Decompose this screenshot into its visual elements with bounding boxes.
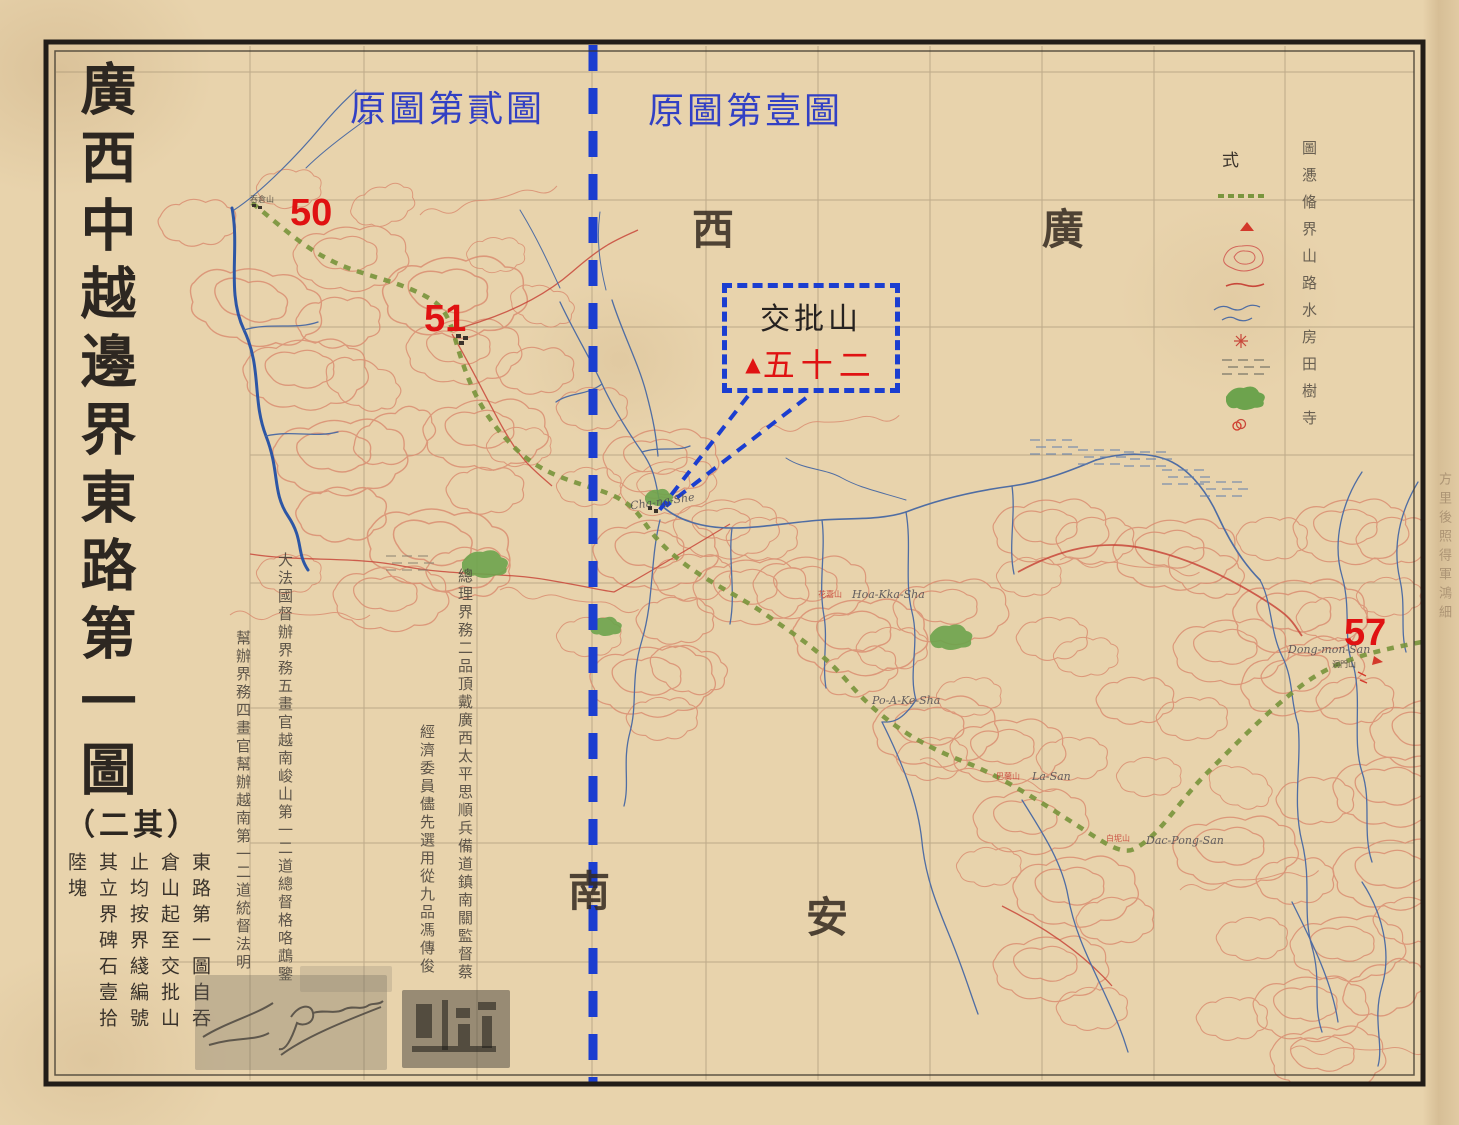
sheet1-label: 原圖第壹圖 (648, 82, 843, 134)
legend-contour-symbol (1224, 246, 1263, 271)
place-label: Po-A-Ke-Sha (872, 694, 940, 707)
caption-committee-member: 經濟委員儘先選用從九品馮傳俊 (412, 724, 434, 976)
map-title-part: （二其） (58, 800, 208, 844)
marsh-texture (386, 440, 1248, 570)
region-char-xi: 西 (692, 196, 734, 257)
place-label: Hoa-Kka-Sha (852, 588, 925, 601)
legend-peak-symbol (1240, 222, 1254, 231)
callout-box: 交批山 ▲五十二 (722, 283, 900, 393)
place-label: La-San (1032, 770, 1071, 783)
caption-french-deputy: 幫辦界務四畫官幫辦越南第一二道統督法明 (228, 630, 250, 972)
title-note-col-5: 陸塊 (59, 852, 85, 904)
map-title: 廣西中越邊界東路第一圖 (76, 60, 132, 808)
map-sheet: 廣西中越邊界東路第一圖 （二其） 東路第一圖自吞 倉山起至交批山 止均按界綫編號… (0, 0, 1459, 1125)
legend-road-symbol (1226, 284, 1264, 287)
peak-triangle-icon: ▲ (745, 352, 760, 376)
legend-river-symbol (1214, 305, 1260, 321)
margin-pencil-note: 方里後照得軍鴻細 (1430, 472, 1450, 624)
place-label: Dong-mon-San (1288, 643, 1370, 656)
place-label-cn: 白坭山 (1106, 833, 1130, 844)
legend-symbols (1214, 196, 1270, 429)
callout-marker-number: 五十二 (763, 340, 877, 386)
title-note-col-4: 其立界碑石壹拾 (90, 852, 116, 1034)
marker-50: 50 (290, 192, 332, 235)
seal-marks (402, 990, 510, 1068)
legend-house-symbol (1234, 334, 1248, 348)
place-label: Dac-Pong-San (1146, 834, 1224, 847)
marker-51: 51 (424, 298, 466, 341)
place-label-cn: 吞倉山 (250, 194, 274, 205)
map-artwork (0, 0, 1459, 1125)
legend-paddy-symbol (1222, 360, 1270, 374)
legend-forest-symbol (1226, 387, 1265, 410)
place-label-cn: 花嘉山 (818, 589, 842, 600)
sheet2-label: 原圖第貳圖 (350, 80, 545, 132)
caption-french-chief: 大法國督辦界務五畫官越南峻山第一二道總督格咯鵡鑒 (270, 552, 292, 984)
legend-header: 式 (1222, 146, 1239, 171)
place-label-cn: 巴蘭山 (996, 771, 1020, 782)
stamp-paper-patch (300, 966, 392, 992)
seal-stamp (402, 990, 510, 1068)
region-char-guang: 廣 (1042, 196, 1084, 257)
callout-mountain-name: 交批山 (727, 294, 895, 338)
caption-chinese-chief: 總理界務二品頂戴廣西太平思順兵備道鎮南關監督蔡 (450, 568, 472, 982)
place-label-cn: 洞門山 (1332, 659, 1356, 670)
region-char-an: 安 (806, 884, 848, 945)
title-note-col-2: 倉山起至交批山 (152, 852, 178, 1034)
vegetation (462, 489, 972, 650)
legend-text-column: 圖慿偹界山路水房田樹寺 (1296, 140, 1316, 437)
title-note-col-3: 止均按界綫編號 (121, 852, 147, 1034)
region-char-nan: 南 (568, 858, 610, 919)
